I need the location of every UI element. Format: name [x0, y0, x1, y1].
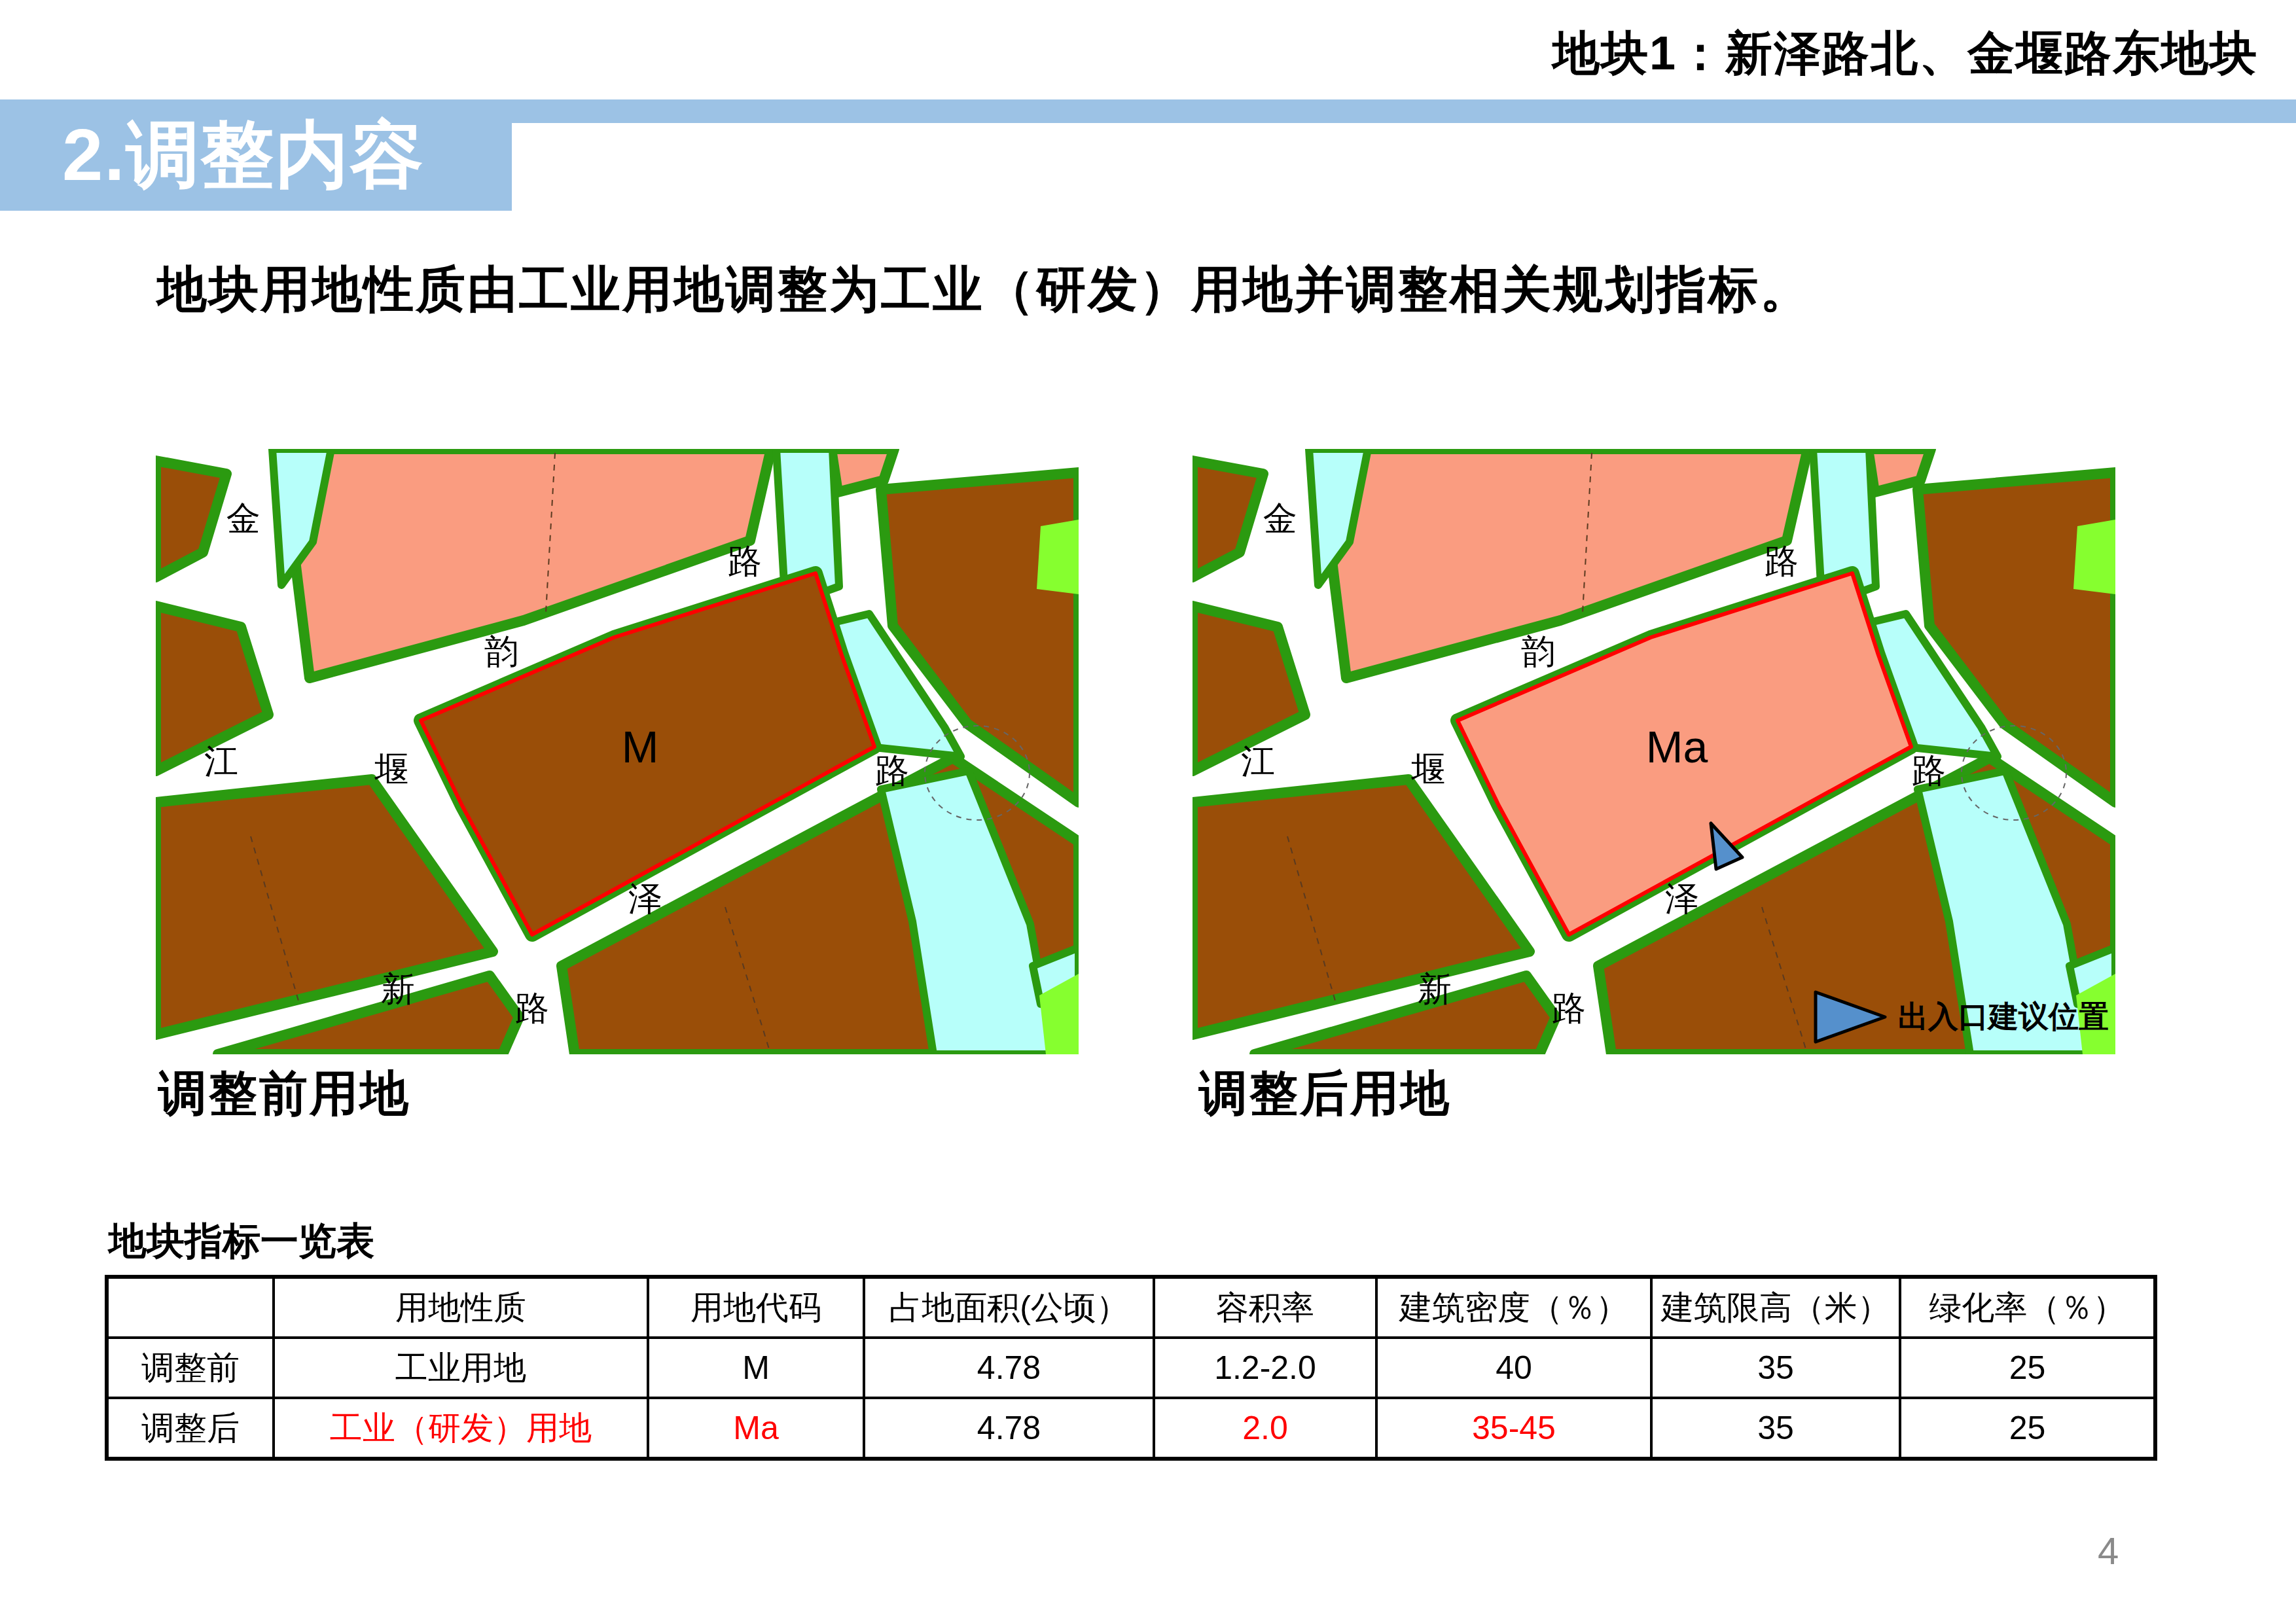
table-cell: 35-45	[1376, 1398, 1651, 1459]
section-banner: 2.调整内容	[0, 99, 512, 211]
table-cell: M	[648, 1338, 864, 1398]
table-cell: 25	[1900, 1398, 2155, 1459]
table-header-cell: 绿化率（％）	[1900, 1277, 2155, 1338]
street-label: 路	[1912, 748, 1946, 794]
table-header-cell: 用地代码	[648, 1277, 864, 1338]
street-label: 金	[226, 496, 260, 542]
street-label: 泽	[628, 876, 662, 922]
table-cell: Ma	[648, 1398, 864, 1459]
street-label: 堰	[1411, 747, 1445, 793]
map-caption-after: 调整后用地	[1199, 1061, 1451, 1127]
table-header-cell: 建筑密度（％）	[1376, 1277, 1651, 1338]
street-label: 路	[728, 539, 762, 584]
table-cell: 工业（研发）用地	[274, 1398, 648, 1459]
street-label: 韵	[484, 629, 518, 675]
section-banner-label: 2.调整内容	[62, 99, 424, 211]
street-label: 堰	[374, 747, 408, 793]
table-header-cell: 容积率	[1154, 1277, 1376, 1338]
table-header-cell: 用地性质	[274, 1277, 648, 1338]
table-header-cell: 占地面积(公顷）	[864, 1277, 1154, 1338]
map-caption-before: 调整前用地	[158, 1061, 410, 1127]
page-number: 4	[2098, 1529, 2119, 1573]
table-row: 调整后工业（研发）用地Ma4.782.035-453525	[107, 1398, 2155, 1459]
parcel-label-after: Ma	[1646, 721, 1708, 772]
table-cell: 35	[1651, 1338, 1900, 1398]
table-cell: 4.78	[864, 1338, 1154, 1398]
street-label: 江	[204, 739, 238, 785]
slide: 地块1：新泽路北、金堰路东地块 2.调整内容 地块用地性质由工业用地调整为工业（…	[0, 0, 2296, 1623]
street-label: 韵	[1521, 629, 1555, 675]
table-cell: 4.78	[864, 1398, 1154, 1459]
street-label: 路	[1552, 986, 1586, 1031]
table-cell: 工业用地	[274, 1338, 648, 1398]
map-before: 金路韵江堰路泽新路 M	[156, 449, 1079, 1054]
table-title: 地块指标一览表	[109, 1216, 374, 1267]
parcel-label-before: M	[622, 721, 659, 772]
table-cell: 2.0	[1154, 1398, 1376, 1459]
street-label: 泽	[1665, 876, 1699, 922]
street-label: 路	[515, 986, 549, 1031]
street-label: 新	[381, 967, 415, 1012]
map-before-canvas	[156, 449, 1079, 1054]
table-cell: 35	[1651, 1398, 1900, 1459]
table-header-cell	[107, 1277, 274, 1338]
page-title: 地块1：新泽路北、金堰路东地块	[1552, 22, 2258, 85]
street-label: 路	[875, 748, 909, 794]
intro-text: 地块用地性质由工业用地调整为工业（研发）用地并调整相关规划指标。	[157, 257, 1812, 324]
table-cell: 1.2-2.0	[1154, 1338, 1376, 1398]
street-label: 路	[1765, 539, 1799, 584]
table-cell: 调整前	[107, 1338, 274, 1398]
indicator-table: 用地性质用地代码占地面积(公顷）容积率建筑密度（％）建筑限高（米）绿化率（％）调…	[105, 1275, 2157, 1461]
table-cell: 40	[1376, 1338, 1651, 1398]
street-label: 江	[1241, 739, 1275, 785]
street-label: 新	[1418, 967, 1452, 1012]
street-label: 金	[1263, 496, 1297, 542]
table-header-cell: 建筑限高（米）	[1651, 1277, 1900, 1338]
table-row: 调整前工业用地M4.781.2-2.0403525	[107, 1338, 2155, 1398]
map-after: 金路韵江堰路泽新路 Ma 出入口建议位置	[1193, 449, 2115, 1054]
table-cell: 调整后	[107, 1398, 274, 1459]
table-cell: 25	[1900, 1338, 2155, 1398]
legend-label: 出入口建议位置	[1898, 997, 2109, 1037]
